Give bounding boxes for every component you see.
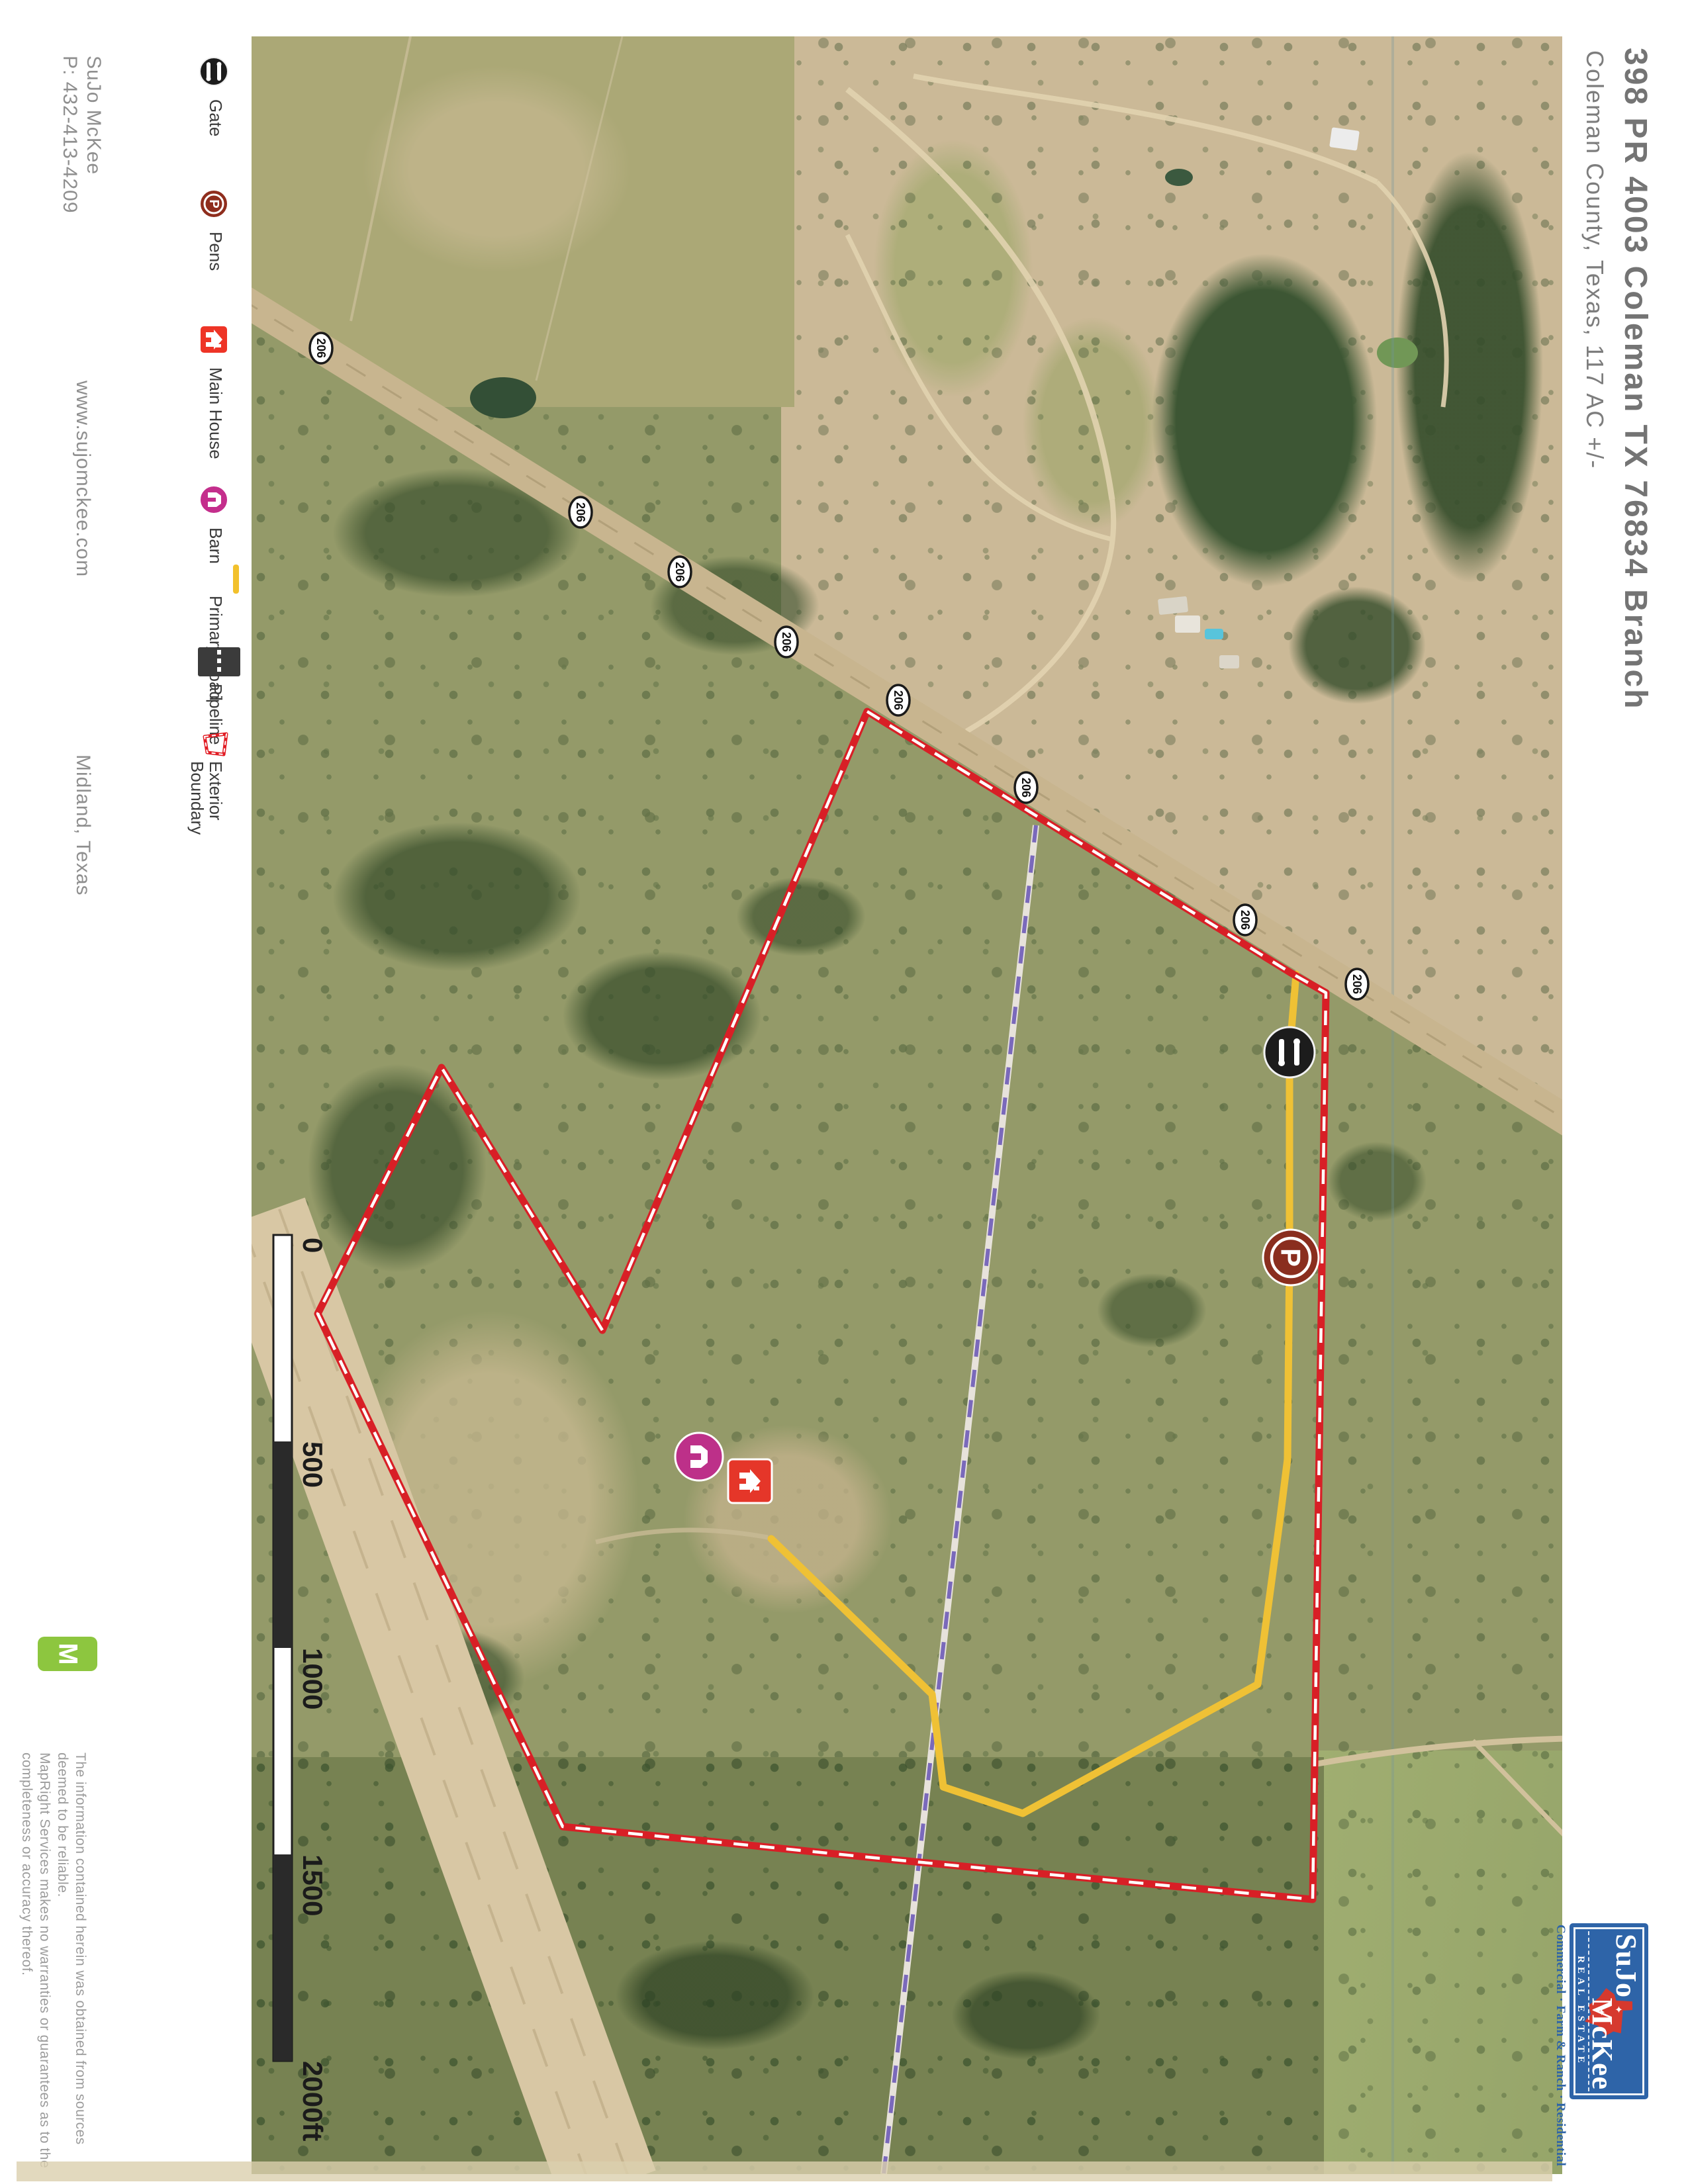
svg-text:206: 206 [892, 690, 905, 710]
scale-label: 2000ft [297, 2061, 328, 2141]
road-shield-206: 206 [569, 497, 592, 527]
exterior-boundary-icon [200, 731, 230, 757]
svg-text:P: P [1276, 1248, 1307, 1267]
disclaimer-line4: completeness or accuracy thereof. [19, 1752, 34, 1976]
agent-website: www.sujomckee.com [71, 381, 94, 577]
agent-city: Midland, Texas [71, 754, 94, 896]
svg-text:P: P [207, 199, 221, 208]
scanned-map-page: SuJo McKee P: 432-413-4209 www.sujomckee… [0, 0, 1688, 2184]
disclaimer-line1: The information contained herein was obt… [72, 1752, 88, 2145]
main-house-marker [728, 1459, 772, 1503]
page-subtitle: Coleman County, Texas, 117 AC +/- [1581, 50, 1609, 469]
agent-phone: P: 432-413-4209 [58, 56, 81, 214]
legend-label-pens: Pens [205, 232, 226, 271]
svg-text:206: 206 [1239, 910, 1252, 930]
sujo-tagline: Commercial · Farm & Ranch · Residential [1553, 1925, 1568, 2166]
logo-word-sujo: SuJo [1609, 1934, 1643, 1998]
golf-trails [847, 76, 1446, 731]
road-shield-206: 206 [1015, 772, 1037, 803]
road-shield-206: 206 [1346, 969, 1368, 999]
logo-word-mckee: McKee [1585, 1998, 1619, 2090]
primary-road-icon [233, 565, 239, 594]
legend-label-main-house: Main House [205, 367, 226, 459]
svg-text:206: 206 [1350, 974, 1364, 994]
svg-text:206: 206 [314, 338, 328, 358]
disclaimer-line3: MapRight Services makes no warranties or… [36, 1752, 52, 2168]
mapright-m-icon: M [53, 1643, 83, 1664]
gate-marker [1264, 1027, 1315, 1077]
pens-marker: P [1263, 1230, 1319, 1285]
legend-label-barn: Barn [205, 527, 226, 564]
page-title: 398 PR 4003 Coleman TX 76834 Branch [1617, 48, 1654, 710]
svg-text:206: 206 [574, 502, 587, 522]
pipeline-line [884, 825, 1036, 2174]
sujo-mckee-logo: SuJo ✦ ✦ McKee REAL ESTATE [1571, 1925, 1647, 2098]
aerial-map: 206 206 206 206 206 206 [252, 36, 1562, 2174]
gate-icon [199, 56, 229, 87]
svg-text:206: 206 [1019, 778, 1033, 797]
scale-label: 1000 [297, 1648, 328, 1709]
primary-road-line [771, 974, 1296, 1813]
main-house-icon [199, 324, 229, 355]
agent-name: SuJo McKee [82, 56, 105, 175]
road-shield-206: 206 [775, 627, 798, 657]
legend-label-boundary: Boundary [187, 761, 207, 835]
legend-label-gate: Gate [205, 99, 226, 136]
map-overlay: 206 206 206 206 206 206 [252, 36, 1562, 2174]
pipeline-icon [198, 647, 240, 676]
scale-label: 1500 [297, 1854, 328, 1916]
road-shield-206: 206 [1234, 905, 1256, 935]
road-shield-206: 206 [887, 685, 910, 715]
pens-icon: P [199, 189, 229, 219]
svg-text:206: 206 [780, 632, 793, 652]
scale-label: 0 [297, 1238, 328, 1253]
scan-edge-artifact [17, 2161, 1552, 2181]
scale-label: 500 [297, 1441, 328, 1488]
road-shield-206: 206 [310, 333, 332, 363]
svg-text:206: 206 [673, 562, 686, 582]
logo-banner-real-estate: REAL ESTATE [1575, 1931, 1589, 2091]
legend-label-exterior: Exterior [205, 761, 226, 821]
barn-icon [199, 484, 229, 515]
mapright-logo: M [38, 1637, 97, 1671]
road-shield-206: 206 [669, 557, 691, 587]
barn-marker [675, 1433, 723, 1480]
disclaimer-line2: deemed to be reliable. [54, 1752, 70, 1897]
